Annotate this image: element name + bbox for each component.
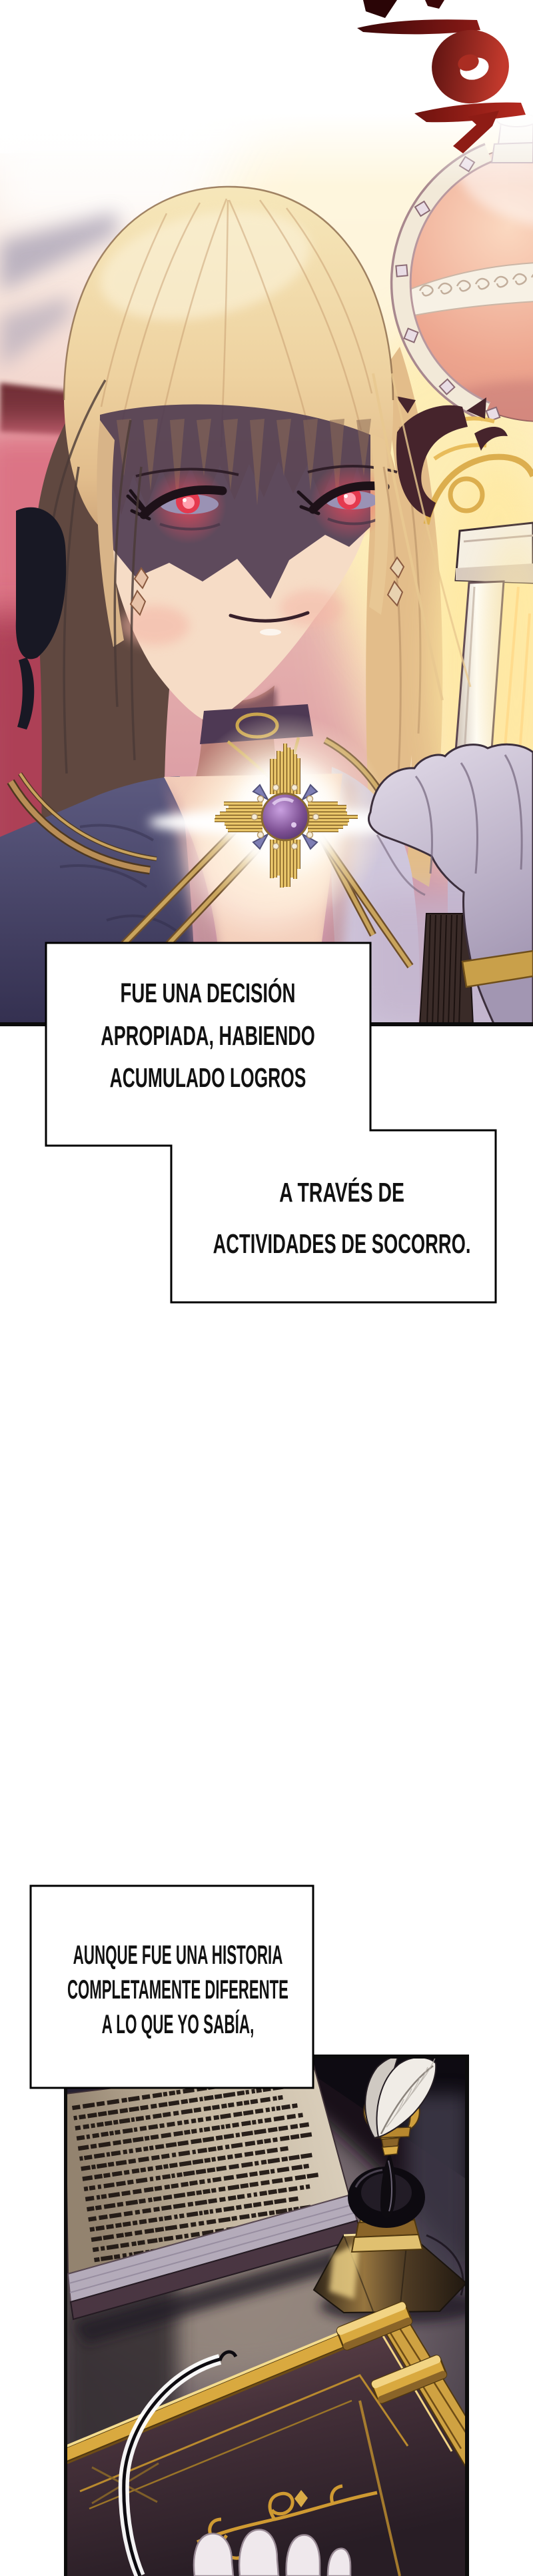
svg-text:FUE UNA DECISIÓN: FUE UNA DECISIÓN [121,977,296,1008]
svg-text:ACTIVIDADES DE SOCORRO.: ACTIVIDADES DE SOCORRO. [213,1229,471,1260]
svg-text:ACUMULADO LOGROS: ACUMULADO LOGROS [110,1063,306,1093]
svg-text:A LO QUE YO SABÍA,: A LO QUE YO SABÍA, [102,2009,255,2039]
svg-text:A TRAVÉS DE: A TRAVÉS DE [279,1177,404,1208]
svg-text:AUNQUE FUE UNA HISTORIA: AUNQUE FUE UNA HISTORIA [73,1940,283,1969]
svg-text:APROPIADA, HABIENDO: APROPIADA, HABIENDO [101,1022,315,1052]
svg-text:COMPLETAMENTE DIFERENTE: COMPLETAMENTE DIFERENTE [67,1975,288,2005]
